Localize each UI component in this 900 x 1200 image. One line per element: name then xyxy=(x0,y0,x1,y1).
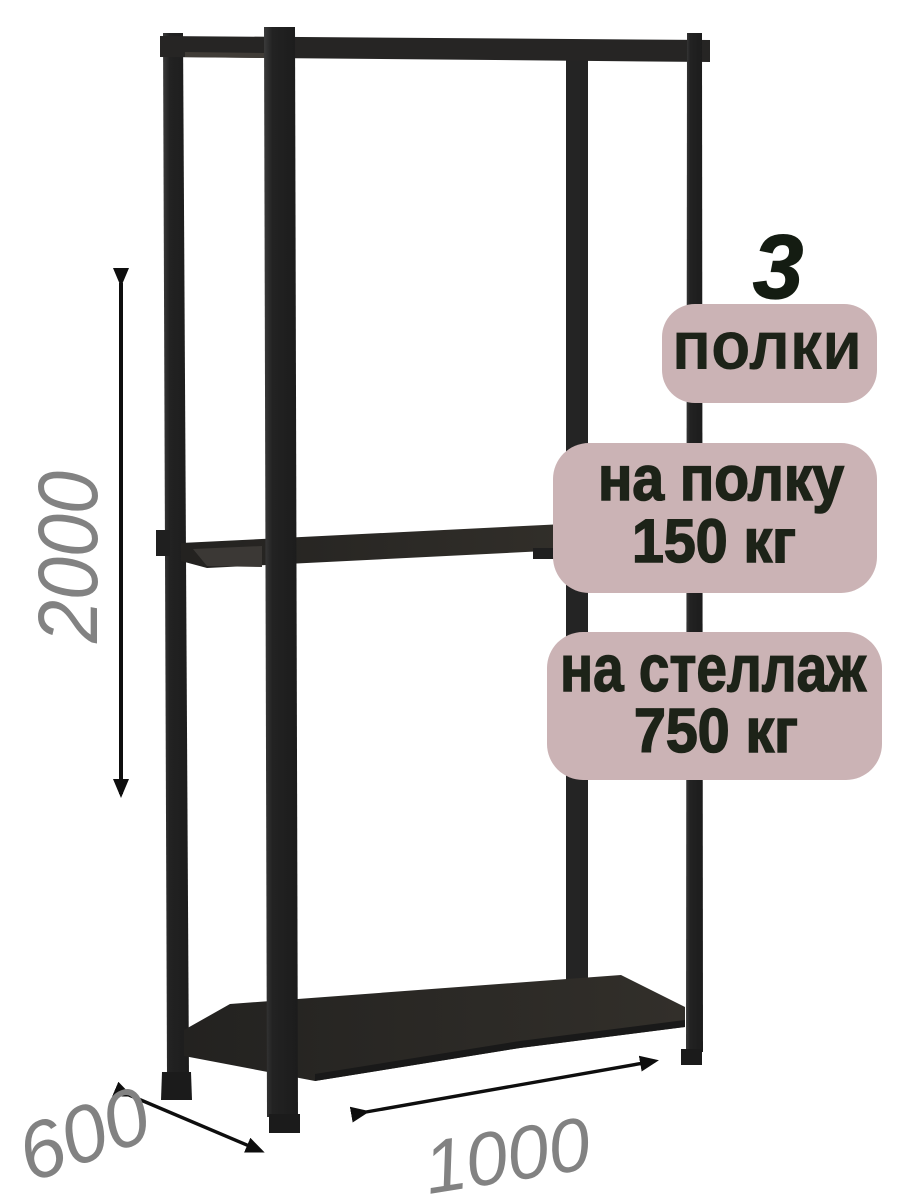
svg-text:600: 600 xyxy=(6,1070,162,1199)
svg-text:750 кг: 750 кг xyxy=(634,697,798,766)
svg-text:полки: полки xyxy=(672,307,862,384)
svg-text:на стеллаж: на стеллаж xyxy=(560,631,867,705)
svg-text:3: 3 xyxy=(753,217,804,318)
svg-text:на полку: на полку xyxy=(598,444,844,514)
svg-text:2000: 2000 xyxy=(21,471,115,644)
svg-text:1000: 1000 xyxy=(418,1101,596,1200)
svg-text:150 кг: 150 кг xyxy=(632,507,796,575)
